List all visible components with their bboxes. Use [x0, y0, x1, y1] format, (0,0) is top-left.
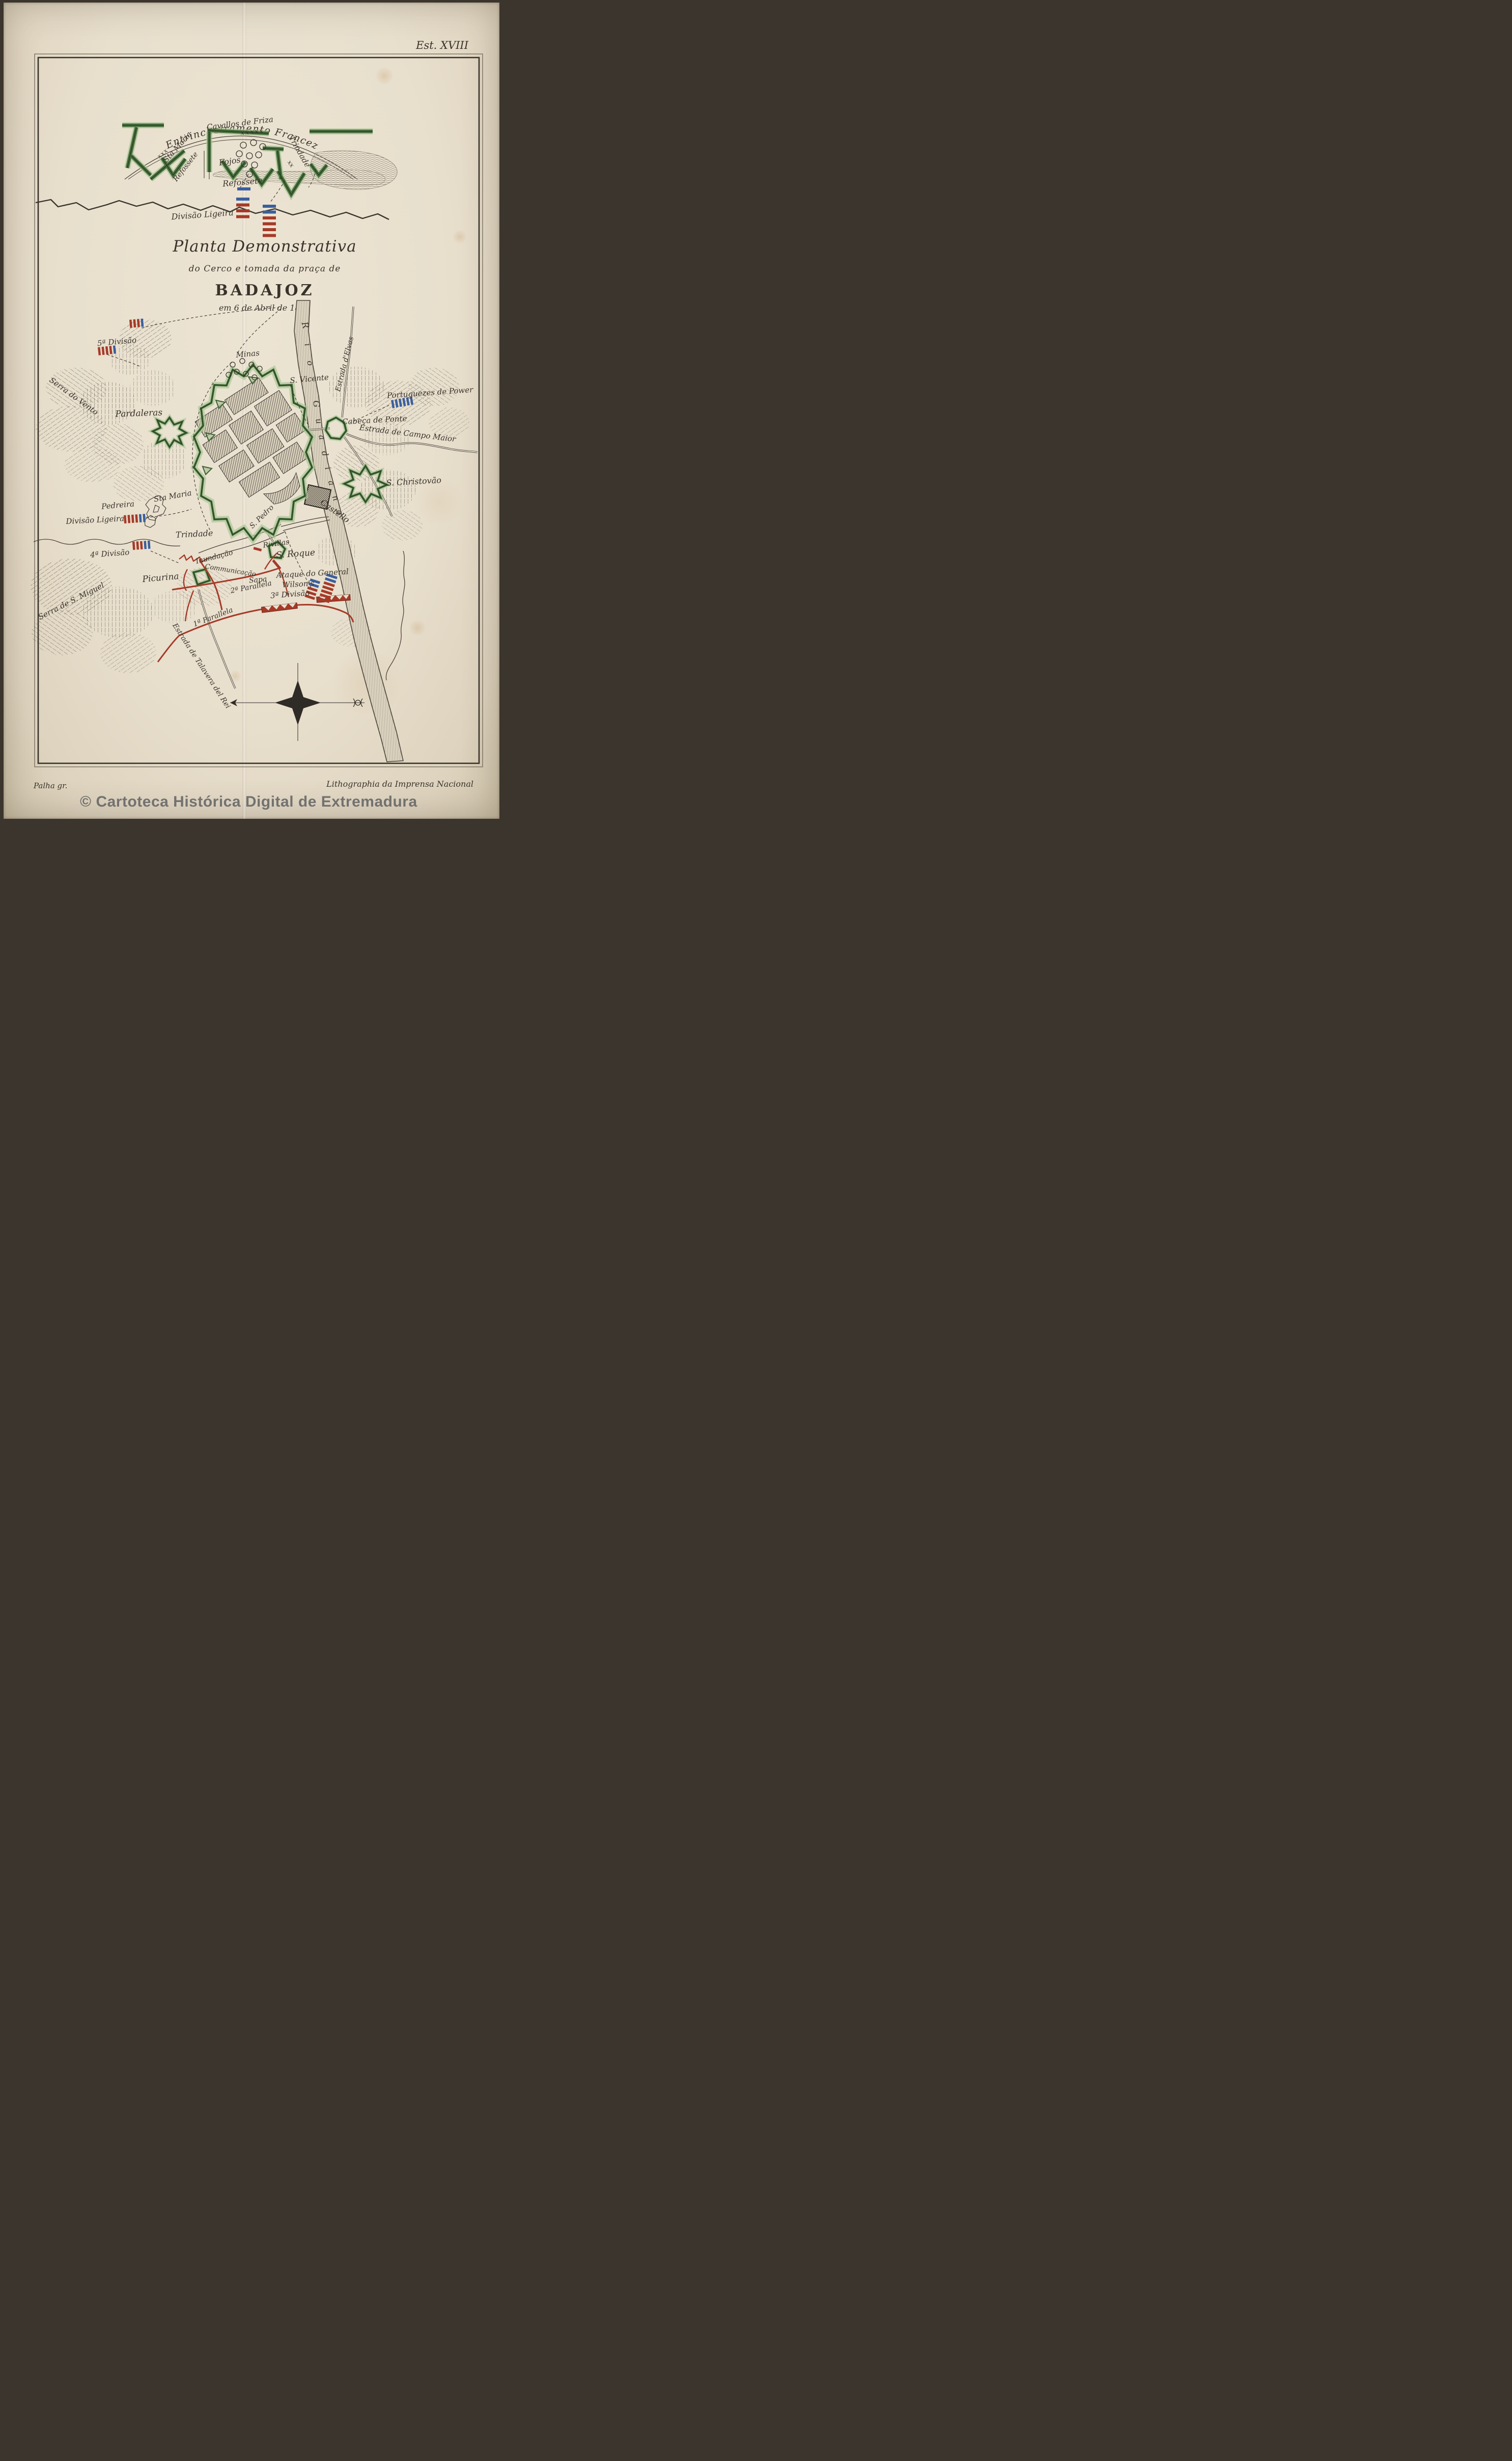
- map-subtitle: do Cerco e tomada da praça de: [189, 264, 341, 274]
- unit-marker-divisao-ligeira: [124, 514, 146, 523]
- label-minas: Minas: [235, 348, 260, 360]
- label-3a-divisao: 3ª Divisão: [270, 588, 310, 600]
- label-fojos: Fojos: [218, 155, 241, 168]
- label-picurina: Picurina: [142, 571, 179, 585]
- label-ataque-2: Wilson's: [282, 578, 315, 589]
- label-4a-divisao: 4ª Divisão: [90, 547, 130, 559]
- label-xx-right: xx: [286, 159, 296, 169]
- unit-marker-4a-divisao: [132, 541, 151, 550]
- wilson-battery-tick: [272, 560, 281, 570]
- photographed-map-sheet: Est. XVIII Entrincheiramento Francez: [0, 0, 504, 820]
- map-title: Planta Demonstrativa: [172, 237, 356, 256]
- battery-1: [262, 603, 298, 613]
- label-divisao-ligeira: Divisão Ligeira: [65, 514, 124, 526]
- map-title-city: BADAJOZ: [215, 282, 314, 299]
- printer-credit: Lithographia da Imprensa Nacional: [326, 779, 473, 789]
- label-inundacao: Inundação: [194, 548, 234, 566]
- label-s-vicente: S. Vicente: [290, 373, 329, 385]
- label-trindade: Trindade: [176, 528, 213, 540]
- engraver-credit: Palha gr.: [34, 781, 67, 790]
- map-svg: Est. XVIII Entrincheiramento Francez: [0, 0, 504, 820]
- east-stream: [386, 551, 405, 680]
- french-entrenchment-inset: Entrincheiramento Francez: [36, 123, 397, 219]
- unit-marker-top-blue: [237, 187, 250, 190]
- label-s-roque: S. Roque: [276, 547, 316, 560]
- label-talavera: Estrada de Talavera del Rei: [171, 621, 232, 710]
- label-rio-g: G: [311, 400, 322, 408]
- label-divisao-ligeira-top: Divisão Ligeira: [171, 208, 234, 222]
- label-ataque-1: Ataque do General: [275, 567, 349, 580]
- title-block: Planta Demonstrativa do Cerco e tomada d…: [172, 237, 356, 313]
- label-rio-u: u: [314, 418, 324, 424]
- mine-circle: [240, 358, 245, 364]
- archive-watermark: © Cartoteca Histórica Digital de Extrema…: [80, 793, 417, 811]
- compass-rose: [230, 663, 365, 741]
- plate-number: Est. XVIII: [415, 39, 469, 51]
- label-pedreira: Pedreira: [100, 499, 134, 511]
- label-rio-o: o: [305, 360, 315, 367]
- label-pardaleras: Pardaleras: [115, 407, 162, 419]
